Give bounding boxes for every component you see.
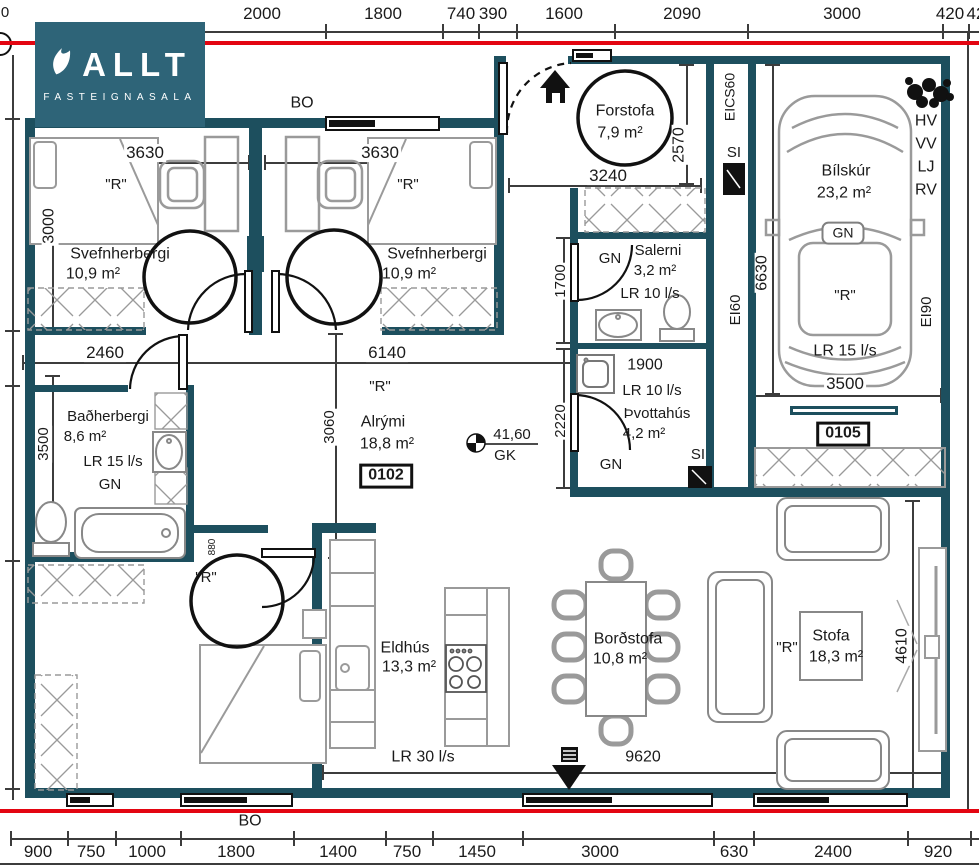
room-salerni: Salerni (635, 243, 682, 259)
si-box-top (723, 163, 745, 195)
closet-bedroom3-top (28, 565, 144, 603)
leaf-icon (48, 47, 76, 84)
room-bilskur: Bílskúr (822, 164, 871, 181)
dim-2570: 2570 (672, 125, 689, 165)
dim-top-3000: 3000 (823, 5, 861, 23)
label-gn-bad: GN (99, 477, 122, 493)
label-r-bedroom3: "R" (195, 570, 216, 586)
desk-chair-bedroom1 (160, 137, 238, 231)
stove (446, 645, 486, 692)
area-alrymi: 18,8 m² (360, 437, 414, 454)
dim-top-390: 390 (479, 5, 507, 23)
area-eldhus: 13,3 m² (382, 660, 436, 677)
logo-brand: ALLT (82, 46, 192, 84)
label-ei90: EI90 (919, 297, 935, 328)
room-svefnherbergi2: Svefnherbergi (387, 247, 487, 264)
sofa-bottom (777, 731, 889, 789)
garage-window-row (755, 448, 945, 487)
label-si-thvottahus: SI (691, 447, 705, 463)
label-si-top: SI (727, 145, 741, 161)
dim-bot-630: 630 (720, 843, 748, 861)
label-vv: VV (915, 137, 936, 154)
dim-2460: 2460 (84, 344, 126, 362)
label-lr30: LR 30 l/s (389, 750, 456, 767)
area-thvottahus: 4,2 m² (623, 426, 666, 442)
label-lr10-thvottahus: LR 10 l/s (620, 383, 683, 399)
dim-6630: 6630 (755, 253, 772, 293)
area-forstofa: 7,9 m² (597, 126, 642, 143)
dim-3060: 3060 (322, 408, 338, 445)
logo-subtitle: FASTEIGNASALA (43, 92, 196, 103)
sink-bathroom (153, 432, 186, 472)
label-ei60: EI60 (728, 295, 744, 326)
closet-bedroom2 (381, 288, 497, 330)
dim-2220: 2220 (553, 402, 569, 439)
label-r-bedroom1: "R" (105, 177, 126, 193)
dim-3630-left: 3630 (124, 144, 166, 162)
dim-top-420: 420 (936, 5, 964, 23)
area-badherbergi: 8,6 m² (64, 429, 107, 445)
label-bo-bottom: BO (238, 814, 261, 831)
label-bo-top: BO (290, 96, 313, 113)
area-bordstofa: 10,8 m² (593, 652, 647, 669)
dim-bot-3000: 3000 (581, 843, 619, 861)
dim-bot-750b: 750 (393, 843, 421, 861)
dim-3240: 3240 (587, 167, 629, 185)
label-r-stofa: "R" (776, 640, 797, 656)
bathtub (75, 508, 185, 558)
label-lr15-bilskur: LR 15 l/s (813, 344, 876, 361)
room-thvottahus: Þvottahús (624, 406, 691, 422)
label-gn-thvottahus: GN (600, 457, 623, 473)
label-gn-salerni: GN (599, 251, 622, 267)
label-gn-car: GN (822, 222, 865, 245)
room-forstofa: Forstofa (596, 104, 655, 121)
dim-3000-left: 3000 (42, 206, 59, 246)
shower-cell-bottom (155, 468, 187, 504)
dim-top-740: 740 (447, 5, 475, 23)
label-r-bilskur: "R" (834, 288, 855, 304)
dim-3500-bad: 3500 (36, 425, 52, 462)
allt-logo: ALLT FASTEIGNASALA (35, 22, 205, 127)
dim-bot-900: 900 (24, 843, 52, 861)
num-0105: 0105 (816, 422, 870, 447)
dim-bot-2400: 2400 (814, 843, 852, 861)
room-svefnherbergi1: Svefnherbergi (70, 247, 170, 264)
dim-3630-right: 3630 (359, 144, 401, 162)
dim-top-1600: 1600 (545, 5, 583, 23)
dim-4610: 4610 (895, 626, 912, 666)
area-svefnherbergi2: 10,9 m² (382, 267, 436, 284)
dim-9620: 9620 (623, 750, 663, 767)
sofa-left (708, 572, 772, 722)
label-level-41-60: 41,60 (493, 427, 531, 443)
toilet-bathroom (33, 502, 69, 556)
label-r-bedroom2: "R" (397, 177, 418, 193)
dim-bot-1450: 1450 (458, 843, 496, 861)
room-eldhus: Eldhús (381, 641, 430, 658)
closet-hall (585, 188, 705, 232)
dim-bot-1400: 1400 (319, 843, 357, 861)
label-r-alrymi: "R" (369, 379, 390, 395)
room-bordstofa: Borðstofa (594, 632, 662, 649)
dim-6140: 6140 (366, 344, 408, 362)
room-alrymi: Alrými (361, 415, 405, 432)
label-gk: GK (494, 448, 516, 464)
dim-top-1800: 1800 (364, 5, 402, 23)
dim-3500-garage: 3500 (824, 375, 866, 393)
label-rv: RV (915, 183, 937, 200)
room-stofa: Stofa (812, 629, 849, 646)
entrance-house-icon (540, 70, 570, 103)
hvac-symbol (905, 77, 954, 108)
dim-880: 880 (208, 539, 219, 556)
label-eics60: EICS60 (723, 73, 738, 121)
dim-left-partial: 0 (1, 5, 9, 21)
area-svefnherbergi1: 10,9 m² (66, 267, 120, 284)
dim-top-2000: 2000 (243, 5, 281, 23)
dim-top-2090: 2090 (663, 5, 701, 23)
num-0102: 0102 (359, 464, 413, 489)
dim-bot-920: 920 (924, 843, 952, 861)
dim-bot-750a: 750 (77, 843, 105, 861)
label-lj: LJ (918, 160, 935, 177)
floorplan-page: 20001800740390160020903000420420BO363036… (0, 0, 979, 867)
label-lr10-salerni: LR 10 l/s (620, 286, 679, 302)
coffee-table (800, 612, 862, 680)
kitchen-island (330, 540, 375, 748)
exit-arrow-icon (552, 747, 586, 790)
label-hv: HV (915, 114, 937, 131)
bed-bedroom3 (200, 610, 326, 763)
area-bilskur: 23,2 m² (817, 186, 871, 203)
dim-1700: 1700 (553, 262, 569, 299)
desk-chair-bedroom2 (286, 137, 362, 231)
dim-1900: 1900 (625, 358, 665, 375)
sofa-top (777, 498, 889, 560)
red-reference-line-bottom (0, 809, 979, 813)
sink-salerni (596, 310, 641, 340)
dim-bot-1800: 1800 (217, 843, 255, 861)
label-lr15-bad: LR 15 l/s (83, 454, 142, 470)
dim-top-partial: 42 (967, 5, 979, 23)
washing-machine (577, 355, 614, 393)
closet-bedroom1 (28, 288, 144, 330)
area-salerni: 3,2 m² (634, 263, 677, 279)
shower-cell-top (155, 393, 187, 429)
si-box-laundry (688, 466, 712, 488)
area-stofa: 18,3 m² (809, 650, 863, 667)
dim-bot-1000: 1000 (128, 843, 166, 861)
closet-bedroom3-left (35, 675, 77, 790)
room-badherbergi: Baðherbergi (67, 409, 149, 425)
